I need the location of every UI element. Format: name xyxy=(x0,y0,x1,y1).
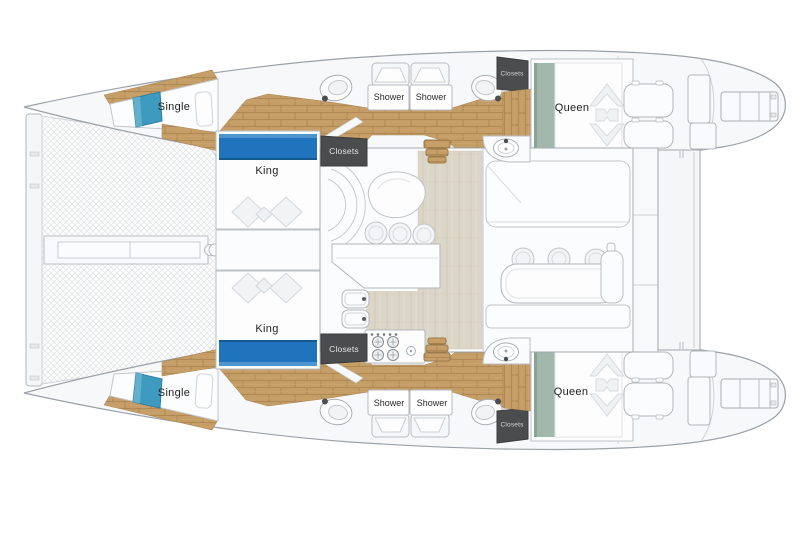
shower-unit-fwd xyxy=(368,63,409,110)
bow-trampoline-assembly xyxy=(26,114,216,386)
swim-steps xyxy=(721,92,778,121)
cockpit-seat xyxy=(624,121,673,148)
dining-bench xyxy=(486,305,630,328)
bar-stools xyxy=(365,222,435,246)
king-cabin xyxy=(216,131,320,229)
aft-cockpit-strip xyxy=(633,148,658,352)
queen-bed-accent xyxy=(534,63,555,149)
closet-box-aft xyxy=(497,57,528,92)
fwd-cockpit-section xyxy=(216,230,320,270)
dining-table xyxy=(501,264,617,303)
helm-console xyxy=(688,75,710,123)
floor-plan-drawing xyxy=(0,0,800,533)
stove xyxy=(365,330,425,363)
steps-bottom xyxy=(424,338,450,361)
closet-box-mid-top xyxy=(321,136,367,166)
shower-unit-aft xyxy=(410,63,452,110)
salon-sofa xyxy=(486,161,630,227)
steps-top xyxy=(424,140,450,163)
cockpit-seat xyxy=(624,84,673,117)
closet-box-mid-bottom xyxy=(321,334,367,364)
catamaran-floor-plan: Single Single King King Queen Queen Show… xyxy=(0,0,800,533)
galley-cabinet xyxy=(601,251,623,303)
